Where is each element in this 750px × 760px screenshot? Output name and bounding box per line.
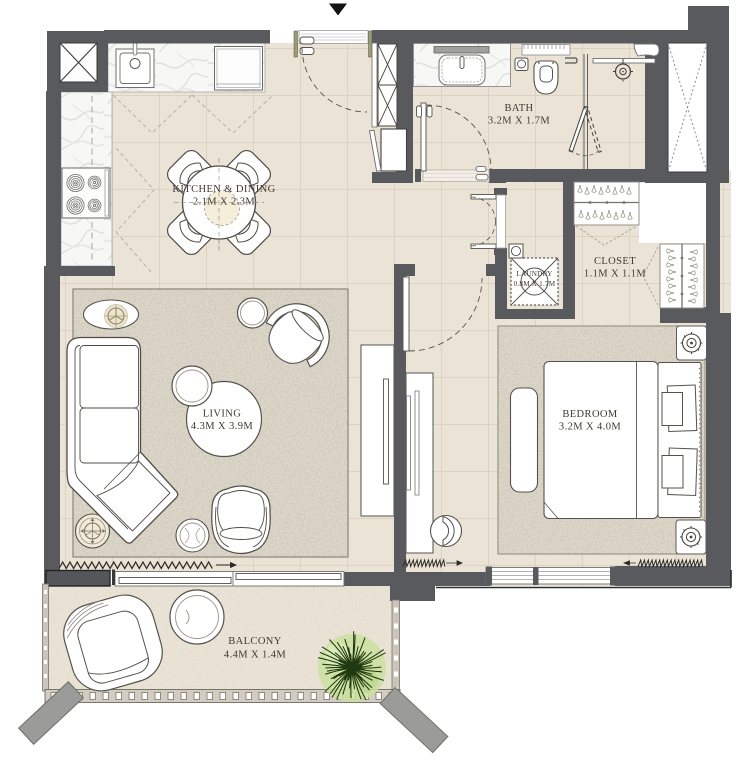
svg-text:BEDROOM: BEDROOM	[562, 409, 618, 420]
svg-text:LIVING: LIVING	[203, 409, 242, 420]
svg-text:3.2M X 4.0M: 3.2M X 4.0M	[559, 422, 621, 433]
svg-text:3.2M X 1.7M: 3.2M X 1.7M	[488, 116, 550, 127]
svg-text:LAUNDRY: LAUNDRY	[516, 270, 553, 278]
svg-text:BATH: BATH	[504, 103, 533, 114]
svg-text:2.1M X 2.3M: 2.1M X 2.3M	[193, 197, 255, 208]
svg-text:1.1M X 1.1M: 1.1M X 1.1M	[584, 269, 646, 280]
svg-text:4.4M X 1.4M: 4.4M X 1.4M	[224, 650, 286, 661]
svg-text:KITCHEN & DINING: KITCHEN & DINING	[172, 184, 275, 195]
svg-text:0.8M X 1.7M: 0.8M X 1.7M	[514, 280, 556, 288]
svg-text:BALCONY: BALCONY	[228, 636, 282, 647]
svg-text:4.3M X 3.9M: 4.3M X 3.9M	[191, 421, 253, 432]
svg-text:CLOSET: CLOSET	[594, 256, 636, 267]
